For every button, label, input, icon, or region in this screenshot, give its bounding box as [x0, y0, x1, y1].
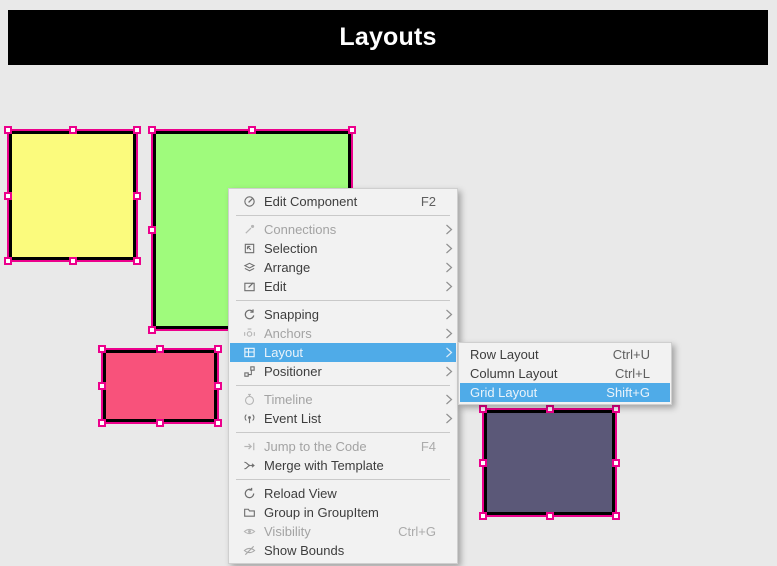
resize-handle[interactable] — [133, 126, 141, 134]
resize-handle[interactable] — [133, 257, 141, 265]
menu-item-connections[interactable]: Connections — [230, 220, 456, 239]
canvas-rect-purple[interactable] — [482, 408, 617, 517]
menu-item-label: Visibility — [264, 524, 398, 539]
anchors-icon — [242, 327, 256, 341]
menu-item-label: Jump to the Code — [264, 439, 421, 454]
resize-handle[interactable] — [612, 512, 620, 520]
menu-item-show-bounds[interactable]: Show Bounds — [230, 541, 456, 560]
canvas-rect-pink[interactable] — [101, 348, 219, 424]
resize-handle[interactable] — [148, 226, 156, 234]
resize-handle[interactable] — [479, 459, 487, 467]
menu-item-anchors[interactable]: Anchors — [230, 324, 456, 343]
menu-item-label: Arrange — [264, 260, 439, 275]
submenu-chevron-icon — [439, 394, 453, 405]
submenu-item-grid-layout[interactable]: Grid Layout Shift+G — [460, 383, 670, 402]
rect-fill — [484, 410, 615, 515]
menu-separator — [236, 215, 450, 216]
resize-handle[interactable] — [148, 126, 156, 134]
selection-icon — [242, 242, 256, 256]
submenu-chevron-icon — [439, 328, 453, 339]
menu-separator — [236, 385, 450, 386]
menu-item-timeline[interactable]: Timeline — [230, 390, 456, 409]
arrange-icon — [242, 261, 256, 275]
menu-separator — [236, 432, 450, 433]
menu-item-arrange[interactable]: Arrange — [230, 258, 456, 277]
canvas-rect-yellow[interactable] — [7, 129, 138, 262]
menu-item-visibility[interactable]: Visibility Ctrl+G — [230, 522, 456, 541]
context-menu: Edit Component F2 Connections Selection … — [228, 188, 458, 564]
submenu-item-column-layout[interactable]: Column Layout Ctrl+L — [460, 364, 670, 383]
connections-icon — [242, 223, 256, 237]
menu-item-label: Edit — [264, 279, 439, 294]
resize-handle[interactable] — [98, 419, 106, 427]
resize-handle[interactable] — [214, 419, 222, 427]
snapping-icon — [242, 308, 256, 322]
submenu-chevron-icon — [439, 413, 453, 424]
submenu-chevron-icon — [439, 243, 453, 254]
eye-slash-icon — [242, 544, 256, 558]
submenu-chevron-icon — [439, 224, 453, 235]
menu-item-positioner[interactable]: Positioner — [230, 362, 456, 381]
resize-handle[interactable] — [69, 126, 77, 134]
menu-shortcut: F4 — [421, 439, 436, 454]
menu-item-edit-component[interactable]: Edit Component F2 — [230, 192, 456, 211]
resize-handle[interactable] — [479, 512, 487, 520]
menu-item-label: Edit Component — [264, 194, 421, 209]
positioner-icon — [242, 365, 256, 379]
resize-handle[interactable] — [546, 512, 554, 520]
menu-item-label: Row Layout — [470, 347, 613, 362]
resize-handle[interactable] — [98, 382, 106, 390]
menu-item-edit[interactable]: Edit — [230, 277, 456, 296]
menu-item-label: Reload View — [264, 486, 439, 501]
edit-icon — [242, 280, 256, 294]
menu-item-label: Snapping — [264, 307, 439, 322]
resize-handle[interactable] — [4, 192, 12, 200]
menu-shortcut: Ctrl+U — [613, 347, 650, 362]
merge-icon — [242, 459, 256, 473]
submenu-chevron-icon — [439, 309, 453, 320]
resize-handle[interactable] — [612, 405, 620, 413]
event-list-icon — [242, 412, 256, 426]
menu-item-event-list[interactable]: Event List — [230, 409, 456, 428]
resize-handle[interactable] — [69, 257, 77, 265]
layout-submenu: Row Layout Ctrl+U Column Layout Ctrl+L G… — [458, 342, 672, 405]
resize-handle[interactable] — [546, 405, 554, 413]
resize-handle[interactable] — [148, 326, 156, 334]
menu-shortcut: Shift+G — [606, 385, 650, 400]
rect-fill — [9, 131, 136, 260]
menu-shortcut: Ctrl+L — [615, 366, 650, 381]
menu-item-label: Group in GroupItem — [264, 505, 439, 520]
menu-shortcut: Ctrl+G — [398, 524, 436, 539]
menu-item-label: Column Layout — [470, 366, 615, 381]
timeline-icon — [242, 393, 256, 407]
resize-handle[interactable] — [98, 345, 106, 353]
resize-handle[interactable] — [133, 192, 141, 200]
folder-icon — [242, 506, 256, 520]
menu-item-label: Selection — [264, 241, 439, 256]
jump-to-code-icon — [242, 440, 256, 454]
menu-item-merge-with-template[interactable]: Merge with Template — [230, 456, 456, 475]
menu-item-label: Timeline — [264, 392, 439, 407]
edit-component-icon — [242, 195, 256, 209]
resize-handle[interactable] — [612, 459, 620, 467]
submenu-chevron-icon — [439, 366, 453, 377]
submenu-chevron-icon — [439, 281, 453, 292]
resize-handle[interactable] — [214, 382, 222, 390]
resize-handle[interactable] — [479, 405, 487, 413]
menu-item-jump-to-the-code[interactable]: Jump to the Code F4 — [230, 437, 456, 456]
menu-item-reload-view[interactable]: Reload View — [230, 484, 456, 503]
menu-item-label: Positioner — [264, 364, 439, 379]
menu-separator — [236, 300, 450, 301]
page-title: Layouts — [339, 23, 436, 52]
menu-item-label: Grid Layout — [470, 385, 606, 400]
resize-handle[interactable] — [348, 126, 356, 134]
menu-item-label: Connections — [264, 222, 439, 237]
menu-item-selection[interactable]: Selection — [230, 239, 456, 258]
menu-item-label: Layout — [264, 345, 439, 360]
submenu-chevron-icon — [439, 347, 453, 358]
menu-shortcut: F2 — [421, 194, 436, 209]
submenu-chevron-icon — [439, 262, 453, 273]
layout-icon — [242, 346, 256, 360]
resize-handle[interactable] — [4, 257, 12, 265]
menu-item-label: Show Bounds — [264, 543, 439, 558]
resize-handle[interactable] — [248, 126, 256, 134]
menu-item-layout[interactable]: Layout — [230, 343, 456, 362]
menu-separator — [236, 479, 450, 480]
menu-item-label: Anchors — [264, 326, 439, 341]
page-header: Layouts — [8, 10, 768, 65]
resize-handle[interactable] — [214, 345, 222, 353]
menu-item-snapping[interactable]: Snapping — [230, 305, 456, 324]
menu-item-label: Merge with Template — [264, 458, 439, 473]
submenu-item-row-layout[interactable]: Row Layout Ctrl+U — [460, 345, 670, 364]
menu-item-label: Event List — [264, 411, 439, 426]
resize-handle[interactable] — [156, 345, 164, 353]
rect-fill — [103, 350, 217, 422]
resize-handle[interactable] — [4, 126, 12, 134]
resize-handle[interactable] — [156, 419, 164, 427]
reload-icon — [242, 487, 256, 501]
menu-item-group-in-groupitem[interactable]: Group in GroupItem — [230, 503, 456, 522]
eye-icon — [242, 525, 256, 539]
